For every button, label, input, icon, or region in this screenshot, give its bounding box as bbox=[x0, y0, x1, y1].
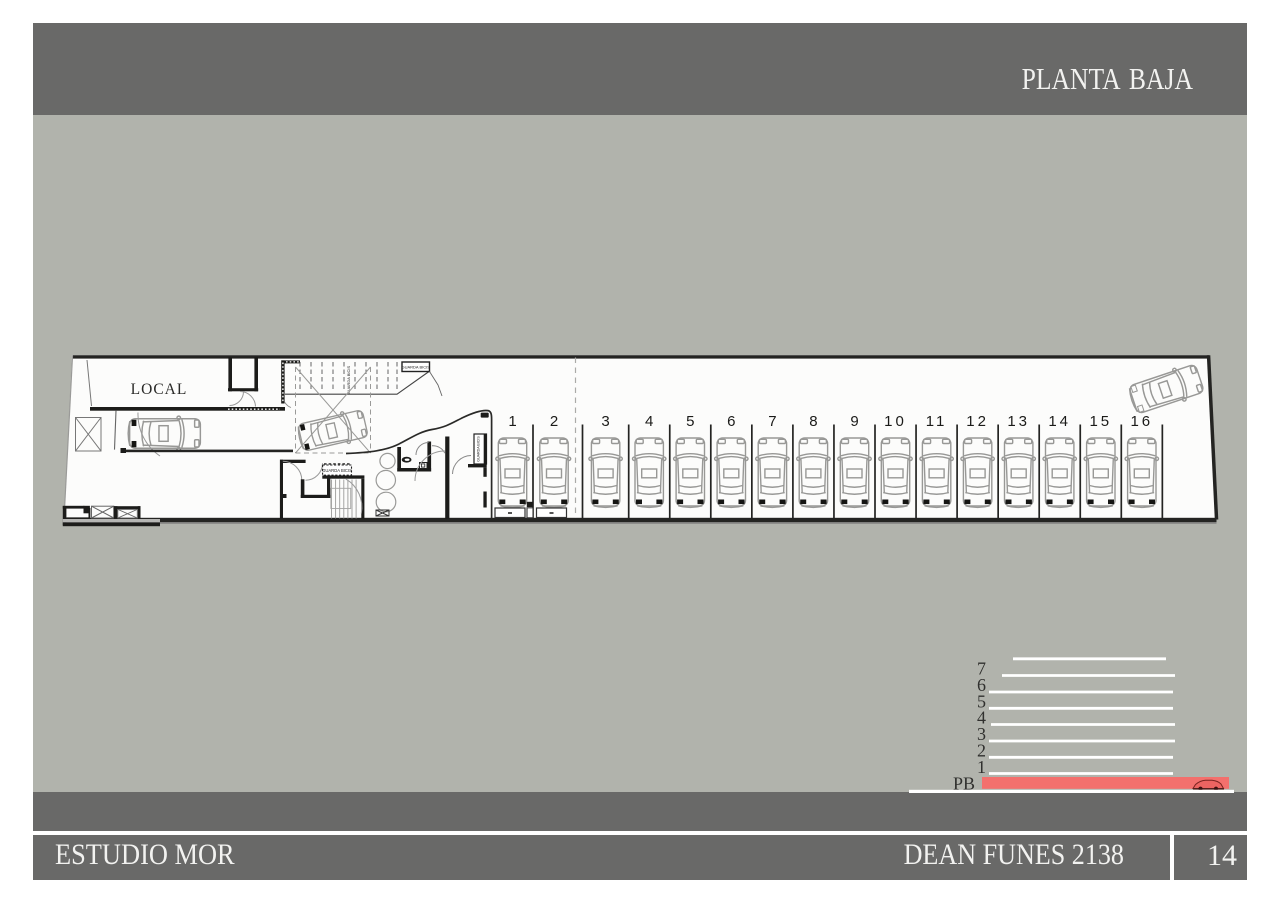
svg-text:8: 8 bbox=[809, 413, 817, 430]
svg-text:1: 1 bbox=[977, 757, 986, 777]
svg-text:5: 5 bbox=[686, 413, 694, 430]
svg-text:11: 11 bbox=[926, 413, 948, 430]
svg-text:GUARDA BICIS: GUARDA BICIS bbox=[322, 468, 352, 473]
svg-text:GUARDA BICIS: GUARDA BICIS bbox=[401, 365, 430, 370]
svg-text:16: 16 bbox=[1130, 413, 1153, 430]
svg-text:7: 7 bbox=[768, 413, 776, 430]
svg-text:12: 12 bbox=[966, 413, 989, 430]
svg-text:GUARDA BICIS: GUARDA BICIS bbox=[477, 436, 481, 462]
svg-text:9: 9 bbox=[850, 413, 858, 430]
svg-text:LOCAL: LOCAL bbox=[131, 381, 188, 398]
svg-text:15: 15 bbox=[1089, 413, 1112, 430]
svg-text:6: 6 bbox=[727, 413, 735, 430]
svg-text:3: 3 bbox=[601, 413, 609, 430]
svg-text:4: 4 bbox=[645, 413, 653, 430]
svg-text:1: 1 bbox=[508, 413, 516, 430]
svg-text:14: 14 bbox=[1048, 413, 1071, 430]
svg-text:10: 10 bbox=[884, 413, 907, 430]
svg-text:13: 13 bbox=[1007, 413, 1030, 430]
svg-text:2: 2 bbox=[550, 413, 558, 430]
